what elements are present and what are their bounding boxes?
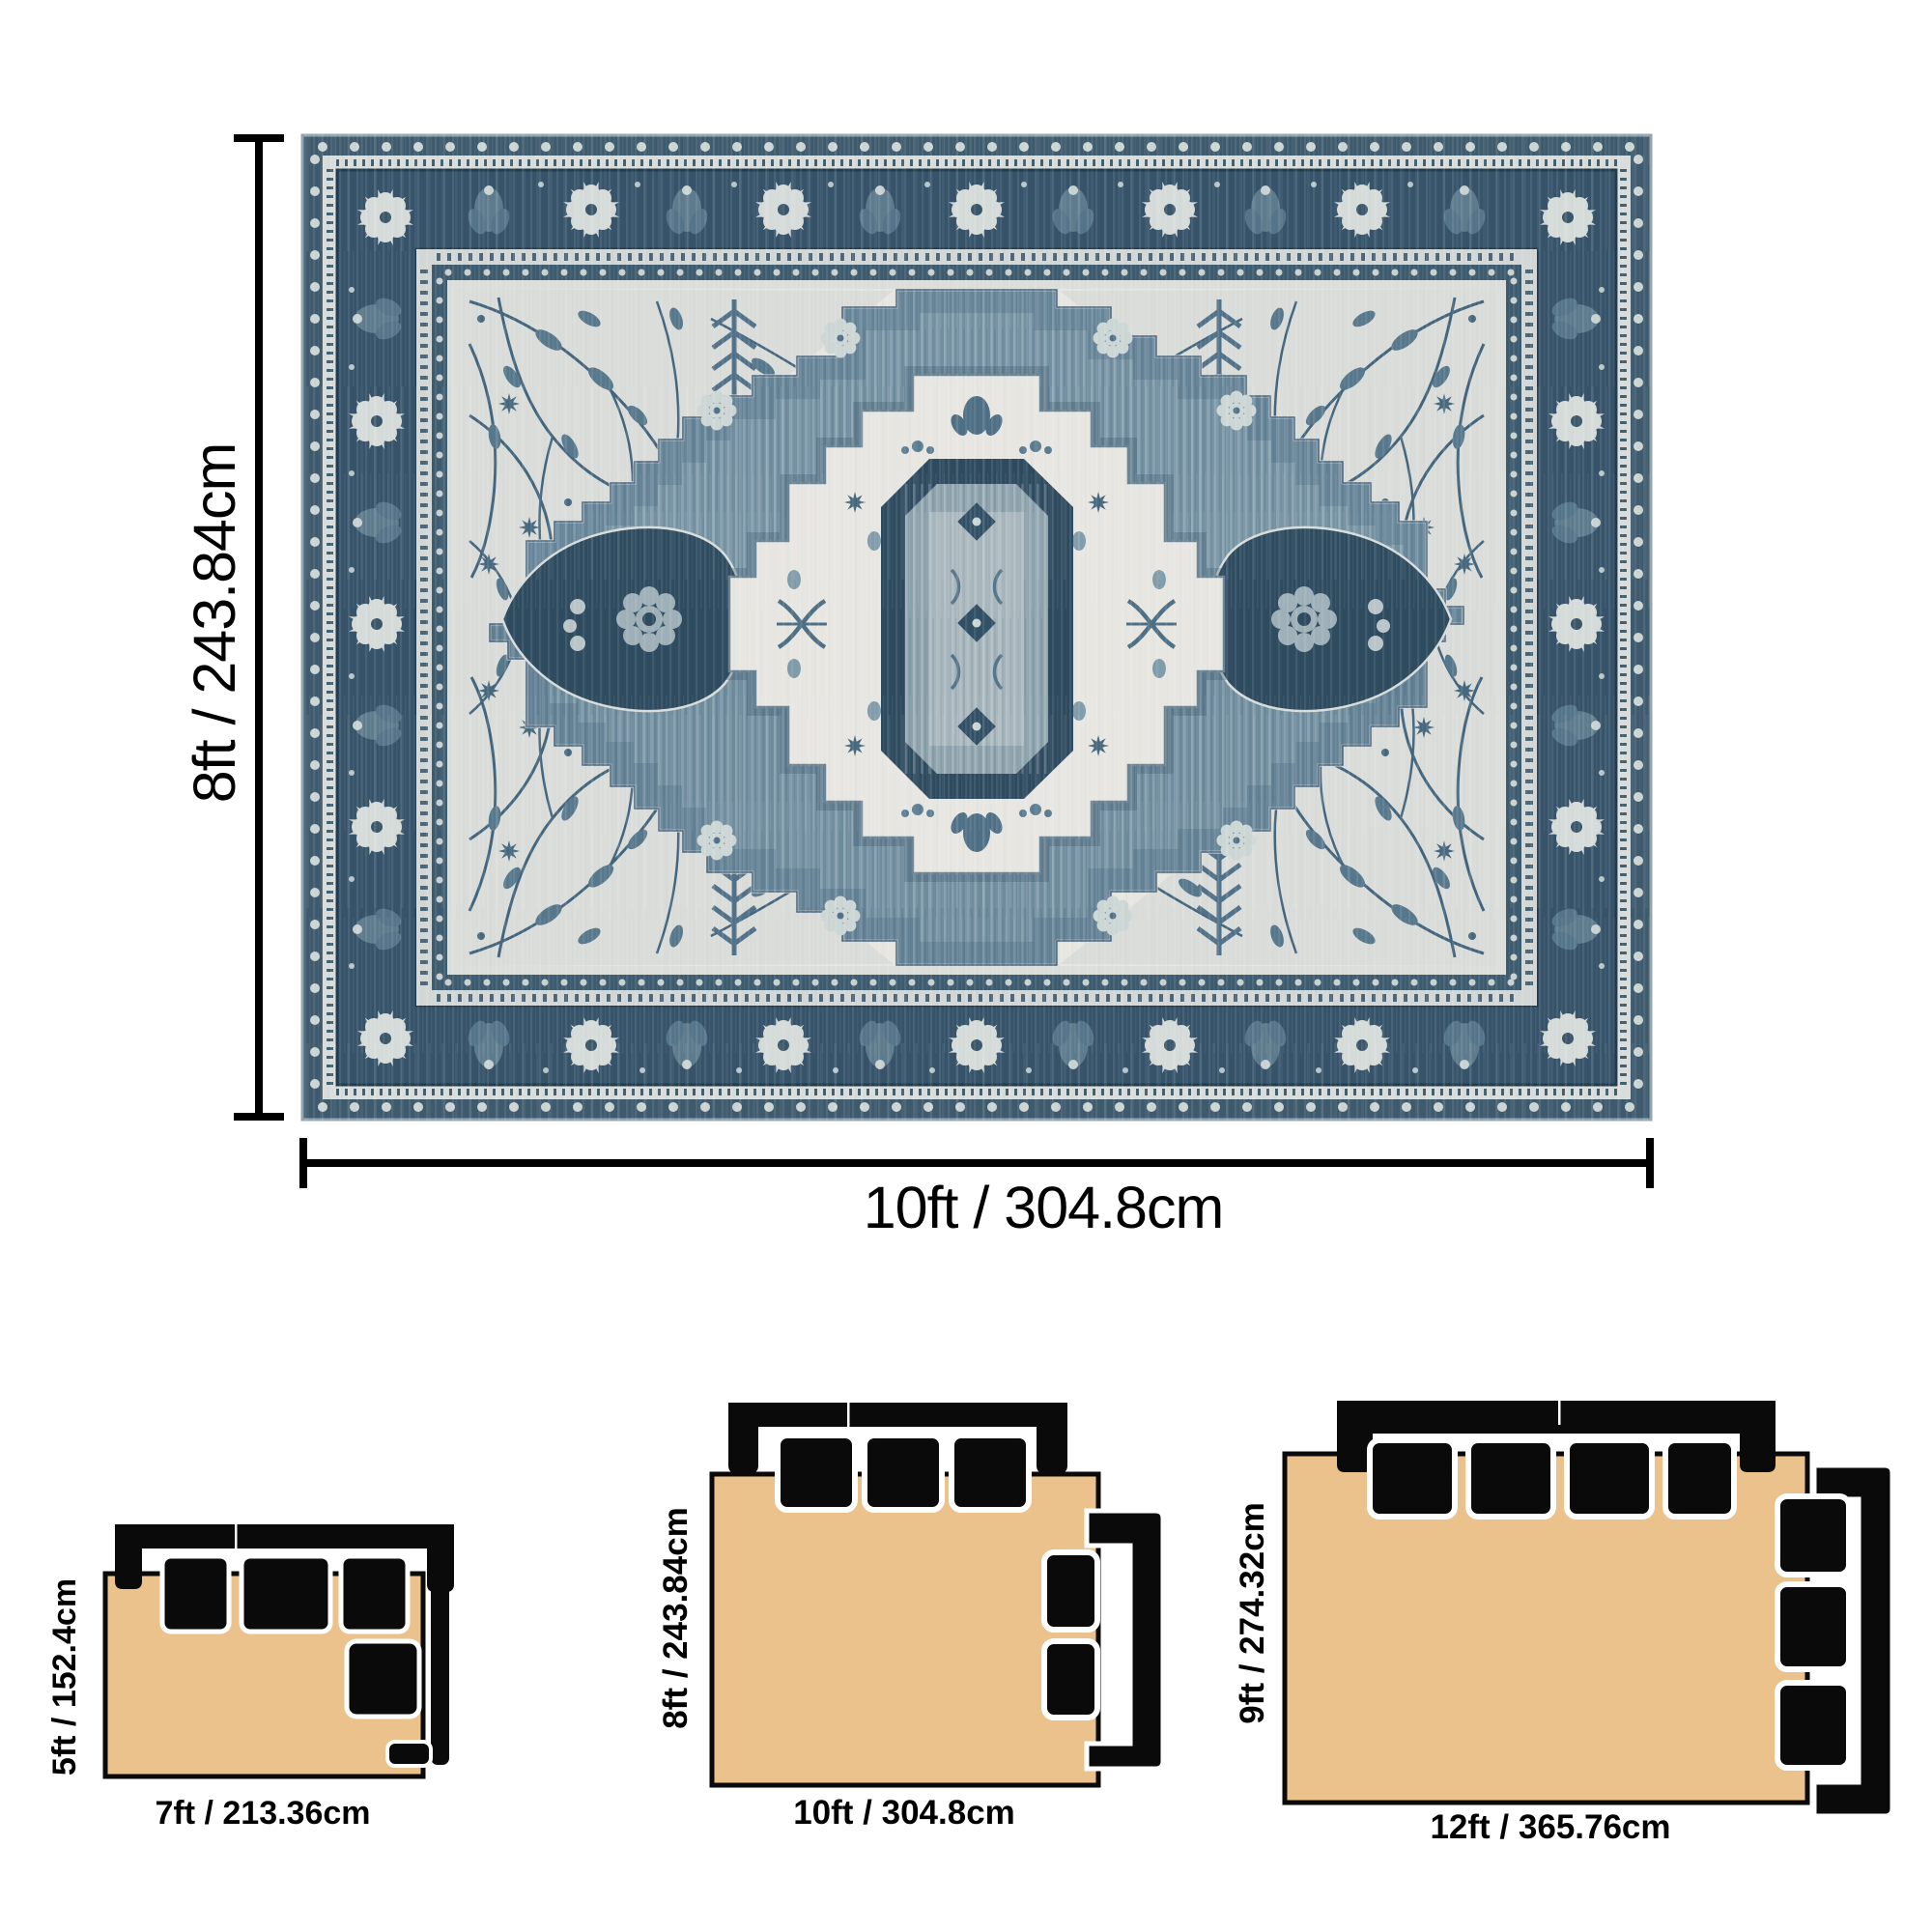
- svg-text:10ft / 304.8cm: 10ft / 304.8cm: [864, 1175, 1224, 1240]
- svg-text:10ft / 304.8cm: 10ft / 304.8cm: [793, 1794, 1015, 1832]
- svg-text:9ft / 274.32cm: 9ft / 274.32cm: [1234, 1502, 1271, 1724]
- svg-text:8ft / 243.84cm: 8ft / 243.84cm: [657, 1507, 695, 1729]
- svg-text:12ft / 365.76cm: 12ft / 365.76cm: [1430, 1808, 1670, 1846]
- svg-text:5ft / 152.4cm: 5ft / 152.4cm: [46, 1578, 83, 1776]
- svg-text:8ft / 243.84cm: 8ft / 243.84cm: [182, 443, 247, 804]
- svg-text:7ft / 213.36cm: 7ft / 213.36cm: [155, 1795, 370, 1832]
